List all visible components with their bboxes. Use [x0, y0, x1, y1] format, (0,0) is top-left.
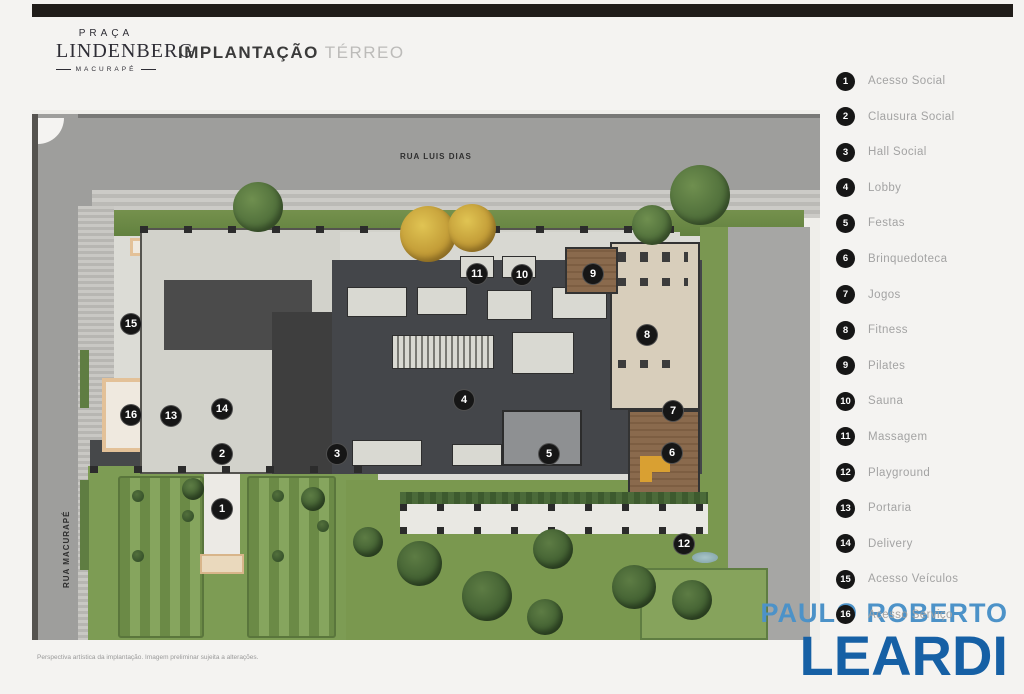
- legend-item-1: 1Acesso Social: [836, 70, 958, 92]
- legend-number-badge: 15: [836, 570, 855, 589]
- plan-marker-9: 9: [582, 263, 604, 285]
- column-row: [90, 466, 380, 473]
- plan-marker-4: 4: [453, 389, 475, 411]
- legend-number-badge: 10: [836, 392, 855, 411]
- bush: [132, 490, 144, 502]
- legend-item-11: 11Massagem: [836, 426, 958, 448]
- page-title: IMPLANTAÇÃO TÉRREO: [178, 43, 405, 63]
- room: [417, 287, 467, 315]
- legend-label: Jogos: [868, 289, 901, 301]
- legend-item-7: 7Jogos: [836, 284, 958, 306]
- tree: [400, 206, 456, 262]
- tree: [527, 599, 563, 635]
- legend-item-12: 12Playground: [836, 462, 958, 484]
- legend-number-badge: 12: [836, 463, 855, 482]
- legend-label: Delivery: [868, 538, 913, 550]
- street-rua-macurape: [38, 114, 78, 640]
- legend-label: Festas: [868, 217, 905, 229]
- tree: [672, 580, 712, 620]
- plan-marker-11: 11: [466, 263, 488, 285]
- legend-item-5: 5Festas: [836, 212, 958, 234]
- legend-number-badge: 14: [836, 534, 855, 553]
- plan-marker-3: 3: [326, 443, 348, 465]
- hedge-row: [400, 492, 708, 504]
- room: [452, 444, 502, 466]
- bush: [272, 550, 284, 562]
- legend-number-badge: 9: [836, 356, 855, 375]
- legend-item-9: 9Pilates: [836, 355, 958, 377]
- legend-number-badge: 4: [836, 178, 855, 197]
- plan-marker-8: 8: [636, 324, 658, 346]
- legend-label: Acesso Serviço: [868, 609, 953, 621]
- legend-item-3: 3Hall Social: [836, 141, 958, 163]
- page: PRAÇA LINDENBERG MACURAPÉ IMPLANTAÇÃO TÉ…: [0, 0, 1024, 694]
- plan-marker-2: 2: [211, 443, 233, 465]
- tree: [670, 165, 730, 225]
- legend-label: Portaria: [868, 502, 911, 514]
- bush: [132, 550, 144, 562]
- room: [347, 287, 407, 317]
- legend-label: Acesso Social: [868, 75, 945, 87]
- brand-logo: PRAÇA LINDENBERG MACURAPÉ: [56, 28, 156, 73]
- tree: [353, 527, 383, 557]
- plan-marker-12: 12: [673, 533, 695, 555]
- bush: [272, 490, 284, 502]
- legend-label: Brinquedoteca: [868, 253, 947, 265]
- gym-equipment-row: [618, 252, 688, 262]
- legend-label: Playground: [868, 467, 930, 479]
- sidewalk-hedge: [80, 350, 89, 408]
- tree: [397, 541, 442, 586]
- brand-dash-left: [56, 69, 71, 70]
- legend-label: Clausura Social: [868, 111, 955, 123]
- plan-marker-10: 10: [511, 264, 533, 286]
- plan-marker-14: 14: [211, 398, 233, 420]
- site-plan: RUA LUIS DIAS RUA MACURAPÉ 1234567891011…: [32, 110, 820, 640]
- tree: [233, 182, 283, 232]
- legend-item-15: 15Acesso Veículos: [836, 568, 958, 590]
- plan-marker-13: 13: [160, 405, 182, 427]
- brand-dash-right: [141, 69, 156, 70]
- legend-label: Acesso Veículos: [868, 573, 958, 585]
- plan-marker-16: 16: [120, 404, 142, 426]
- legend-number-badge: 11: [836, 427, 855, 446]
- entry-pad: [200, 554, 244, 574]
- disclaimer-text: Perspectiva artística da implantação. Im…: [37, 654, 258, 661]
- legend-item-14: 14Delivery: [836, 533, 958, 555]
- legend-label: Pilates: [868, 360, 905, 372]
- plan-marker-6: 6: [661, 442, 683, 464]
- legend-number-badge: 8: [836, 321, 855, 340]
- fitness-room: [610, 242, 700, 410]
- legend-label: Lobby: [868, 182, 901, 194]
- legend-number-badge: 3: [836, 143, 855, 162]
- legend-label: Hall Social: [868, 146, 927, 158]
- elevator-block: [512, 332, 574, 374]
- legend-label: Sauna: [868, 395, 903, 407]
- tree: [182, 478, 204, 500]
- plan-marker-1: 1: [211, 498, 233, 520]
- brand-macurape: MACURAPÉ: [56, 66, 156, 73]
- tree: [462, 571, 512, 621]
- room: [487, 290, 532, 320]
- legend-label: Fitness: [868, 324, 908, 336]
- legend-label: Massagem: [868, 431, 927, 443]
- sidewalk-hedge: [80, 480, 89, 570]
- legend-number-badge: 1: [836, 72, 855, 91]
- legend-item-4: 4Lobby: [836, 177, 958, 199]
- street-label-rua-macurape: RUA MACURAPÉ: [62, 511, 71, 588]
- leardi-logo-bottom-line: LEARDI: [760, 628, 1008, 684]
- legend-number-badge: 6: [836, 249, 855, 268]
- sofa: [640, 456, 652, 482]
- tree: [301, 487, 325, 511]
- legend-number-badge: 16: [836, 605, 855, 624]
- legend-number-badge: 2: [836, 107, 855, 126]
- legend-number-badge: 7: [836, 285, 855, 304]
- bush: [317, 520, 329, 532]
- brand-praca: PRAÇA: [56, 28, 156, 39]
- legend-item-13: 13Portaria: [836, 497, 958, 519]
- tree: [533, 529, 573, 569]
- tree: [612, 565, 656, 609]
- tree: [448, 204, 496, 252]
- title-implantacao: IMPLANTAÇÃO: [178, 43, 319, 62]
- brand-macurape-text: MACURAPÉ: [76, 66, 137, 73]
- tree: [632, 205, 672, 245]
- legend-item-2: 2Clausura Social: [836, 106, 958, 128]
- gym-equipment-row: [618, 278, 688, 286]
- bush: [182, 510, 194, 522]
- room: [352, 440, 422, 466]
- legend-item-10: 10Sauna: [836, 390, 958, 412]
- top-divider-bar: [32, 4, 1013, 17]
- title-terreo: TÉRREO: [325, 43, 405, 62]
- legend-item-16: 16Acesso Serviço: [836, 604, 958, 626]
- gym-equipment-row: [618, 360, 678, 368]
- planting-bed: [118, 476, 204, 638]
- legend-number-badge: 13: [836, 499, 855, 518]
- plan-marker-15: 15: [120, 313, 142, 335]
- legend-number-badge: 5: [836, 214, 855, 233]
- plan-marker-5: 5: [538, 443, 560, 465]
- stairs-block: [392, 335, 494, 369]
- plan-marker-7: 7: [662, 400, 684, 422]
- brand-lindenberg: LINDENBERG: [56, 40, 156, 63]
- playground-pond: [692, 552, 718, 563]
- plan-left-edge: [32, 114, 38, 640]
- legend-item-6: 6Brinquedoteca: [836, 248, 958, 270]
- street-label-rua-luis-dias: RUA LUIS DIAS: [400, 152, 472, 161]
- legend-item-8: 8Fitness: [836, 319, 958, 341]
- legend: 1Acesso Social2Clausura Social3Hall Soci…: [836, 70, 958, 626]
